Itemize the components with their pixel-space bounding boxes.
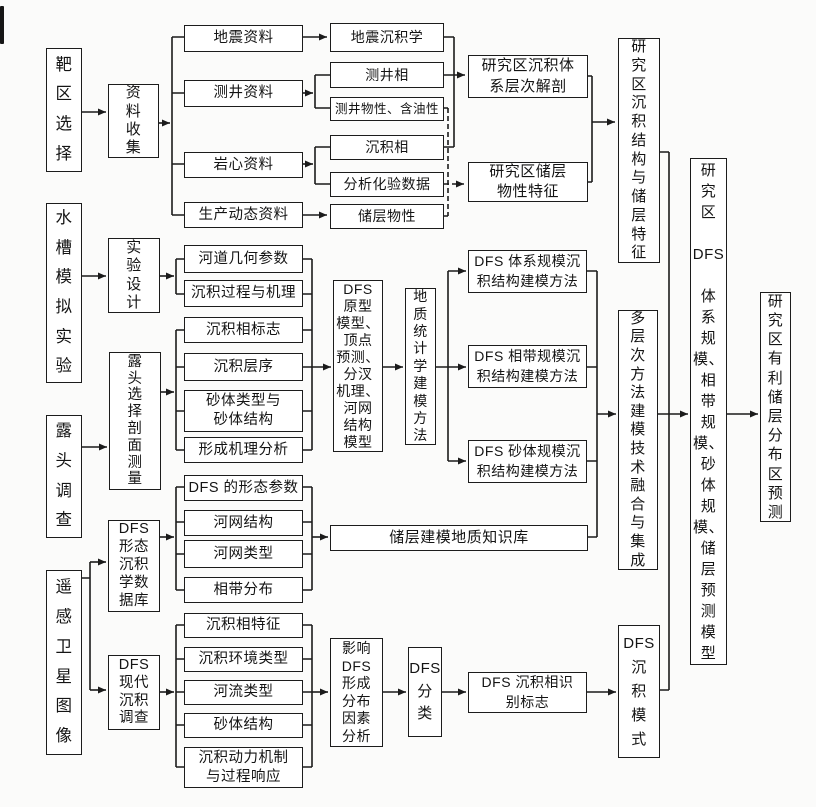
- node-knowledge-base: 储层建模地质知识库: [330, 525, 588, 551]
- node-facies-characteristics: 沉积相特征: [184, 613, 303, 638]
- node-well-log-properties: 测井物性、含油性: [330, 97, 444, 121]
- node-data-collection: 资 料 收 集: [108, 84, 159, 158]
- node-dfs-sediment-pattern: DFS 沉 积 模 式: [618, 625, 660, 758]
- node-dfs-scale-models: 研 究 区 DFS 体 系 规 模、 相 带 规 模、 砂 体 规 模、 储 层…: [690, 158, 727, 665]
- node-remote-sensing: 遥 感 卫 星 图 像: [46, 570, 82, 755]
- flowchart-canvas: 靶 区 选 择 水 槽 模 拟 实 验 露 头 调 查 遥 感 卫 星 图 像 …: [0, 0, 816, 807]
- node-well-log-data: 测井资料: [184, 80, 303, 107]
- node-outcrop-selection: 露 头 选 择 剖 面 测 量: [109, 352, 161, 490]
- node-channel-geometry: 河道几何参数: [184, 245, 303, 273]
- node-geostat-modeling: 地 质 统 计 学 建 模 方 法: [405, 288, 436, 445]
- node-dfs-facies-id-markers: DFS 沉积相识 别标志: [468, 672, 587, 713]
- node-lab-analysis-data: 分析化验数据: [330, 172, 444, 197]
- node-environment-type: 沉积环境类型: [184, 647, 303, 672]
- node-sedimentary-facies: 沉积相: [330, 135, 444, 160]
- node-dfs-morph-params: DFS 的形态参数: [184, 475, 303, 501]
- node-river-type: 河流类型: [184, 680, 303, 705]
- node-reservoir-property-char: 研究区储层 物性特征: [468, 162, 588, 202]
- node-dfs-sand-modeling: DFS 砂体规模沉 积结构建模方法: [468, 440, 587, 483]
- node-sandbody-structure: 砂体结构: [184, 713, 303, 738]
- node-experiment-design: 实 验 设 计: [108, 238, 160, 313]
- node-structure-reservoir-char: 研 究 区 沉 积 结 构 与 储 层 特 征: [618, 38, 660, 263]
- node-outcrop-survey: 露 头 调 查: [46, 415, 82, 538]
- node-dfs-modern-survey: DFS 现代 沉积 调查: [108, 655, 160, 730]
- node-well-log-facies: 测井相: [330, 62, 444, 88]
- node-formation-mechanism: 形成机理分析: [184, 437, 303, 463]
- node-river-network-type: 河网类型: [184, 540, 303, 568]
- node-dfs-morph-db: DFS 形态 沉积 学数 据库: [108, 520, 160, 612]
- node-dfs-system-modeling: DFS 体系规模沉 积结构建模方法: [468, 250, 587, 293]
- node-dfs-prototype: DFS 原型 模型、 顶点 预测、 分汊 机理、 河网 结构 模型: [333, 280, 383, 452]
- node-target-area: 靶 区 选 择: [46, 48, 82, 172]
- node-hierarchy-analysis: 研究区沉积体 系层次解剖: [468, 55, 588, 98]
- node-sediment-sequence: 沉积层序: [184, 353, 303, 381]
- node-river-network-structure: 河网结构: [184, 510, 303, 536]
- scan-artifact: [0, 6, 4, 44]
- node-production-data: 生产动态资料: [184, 202, 303, 228]
- node-flume-experiment: 水 槽 模 拟 实 验: [46, 203, 82, 383]
- node-dfs-belt-modeling: DFS 相带规模沉 积结构建模方法: [468, 345, 587, 388]
- node-reservoir-properties: 储层物性: [330, 204, 444, 229]
- node-facies-belt-distribution: 相带分布: [184, 577, 303, 603]
- node-sediment-process: 沉积过程与机理: [184, 280, 303, 307]
- node-multilevel-integration: 多 层 次 方 法 建 模 技 术 融 合 与 集 成: [618, 310, 658, 570]
- node-core-data: 岩心资料: [184, 152, 303, 178]
- node-influence-analysis: 影响 DFS 形成 分布 因素 分析: [330, 638, 383, 747]
- node-sandbody-type: 砂体类型与 砂体结构: [184, 390, 303, 432]
- node-seismic-sedimentology: 地震沉积学: [330, 23, 444, 52]
- node-sediment-dynamics: 沉积动力机制 与过程响应: [184, 747, 303, 788]
- node-seismic-data: 地震资料: [184, 25, 303, 52]
- node-facies-markers: 沉积相标志: [184, 317, 303, 343]
- node-dfs-classification: DFS 分 类: [408, 647, 442, 737]
- node-favorable-prediction: 研 究 区 有 利 储 层 分 布 区 预 测: [760, 292, 791, 522]
- dashed-bus: [444, 108, 448, 216]
